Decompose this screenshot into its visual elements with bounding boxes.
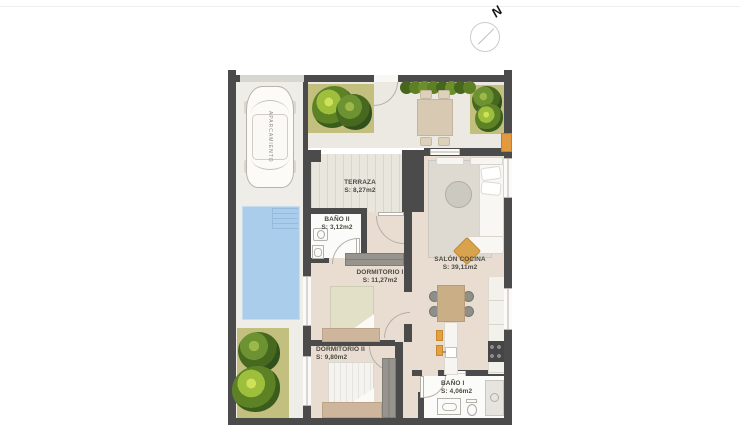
bed-headboard-bedroom1 xyxy=(322,328,380,342)
room-label-dorm2: DORMITORIO II S: 9,80m2 xyxy=(316,346,376,363)
toilet-tank-bath1 xyxy=(466,399,477,403)
wardrobe-bedroom2 xyxy=(382,358,396,418)
bed-headboard-bedroom2 xyxy=(322,402,382,418)
floor-plan-page: N xyxy=(0,0,740,445)
dining-table xyxy=(437,285,465,322)
sofa-pillow xyxy=(480,181,501,196)
side-gate xyxy=(501,133,512,152)
hedge xyxy=(404,79,470,96)
room-area: S: 9,80m2 xyxy=(316,354,376,362)
window-bedroom2 xyxy=(303,356,311,406)
kitchen-cabinet xyxy=(470,157,503,165)
room-label-bano1: BAÑO I S: 4,06m2 xyxy=(441,380,489,397)
patio-chair xyxy=(438,90,450,99)
wall-terrace-block xyxy=(303,150,321,162)
wall-terrace-right xyxy=(402,150,424,212)
room-label-bano2: BAÑO II S: 3,12m2 xyxy=(311,216,363,233)
page-top-divider xyxy=(0,6,740,7)
stove xyxy=(488,341,504,362)
room-name: BAÑO II xyxy=(311,216,363,224)
tree xyxy=(336,94,372,130)
sofa-pillow xyxy=(480,166,502,182)
room-name: BAÑO I xyxy=(441,380,489,388)
coffee-table xyxy=(445,181,472,208)
patio-chair xyxy=(438,137,450,146)
tree xyxy=(475,104,503,132)
room-label-terraza: TERRAZA S: 8,27m2 xyxy=(330,179,390,196)
room-label-salon: SALÓN COCINA S: 39,11m2 xyxy=(430,256,490,273)
bar-stool xyxy=(436,345,443,356)
room-area: S: 4,06m2 xyxy=(441,388,489,396)
pedestrian-gate-opening xyxy=(374,75,398,82)
driveway-gate xyxy=(240,75,304,82)
wall-outer-bottom xyxy=(228,418,512,425)
wall-bedroom2-right xyxy=(395,342,403,418)
shower-drain xyxy=(490,393,499,402)
toilet-bowl-bath1 xyxy=(467,404,477,416)
parking-label: APARCAMIENTO xyxy=(246,86,294,188)
room-label-dorm1: DORMITORIO I S: 11,27m2 xyxy=(350,269,410,286)
kitchen-sink xyxy=(445,347,457,358)
sink-basin-bath2 xyxy=(314,248,322,257)
patio-table xyxy=(417,99,453,136)
room-name: SALÓN COCINA xyxy=(430,256,490,264)
door-leaf-entry xyxy=(378,212,404,216)
window-salon-right-1 xyxy=(504,158,512,198)
room-area: S: 39,11m2 xyxy=(430,264,490,272)
window-salon-top xyxy=(430,149,460,155)
room-name: DORMITORIO I xyxy=(350,269,410,277)
room-name: TERRAZA xyxy=(330,179,390,187)
room-area: S: 11,27m2 xyxy=(350,277,410,285)
wall-outer-left xyxy=(228,70,236,425)
door-leaf-bath1 xyxy=(420,376,424,398)
window-bedroom1 xyxy=(303,276,311,326)
wardrobe-bedroom1 xyxy=(345,253,404,266)
bar-stool xyxy=(436,330,443,341)
room-area: S: 8,27m2 xyxy=(330,187,390,195)
room-area: S: 3,12m2 xyxy=(311,224,363,232)
kitchen-cabinet xyxy=(436,157,464,165)
patio-chair xyxy=(420,137,432,146)
room-name: DORMITORIO II xyxy=(316,346,376,354)
patio-chair xyxy=(420,90,432,99)
wall-parking-fence xyxy=(303,82,308,150)
sink-basin-bath1 xyxy=(442,403,457,411)
pool-steps xyxy=(272,208,298,229)
window-salon-right-2 xyxy=(504,288,512,330)
tree xyxy=(232,366,280,412)
